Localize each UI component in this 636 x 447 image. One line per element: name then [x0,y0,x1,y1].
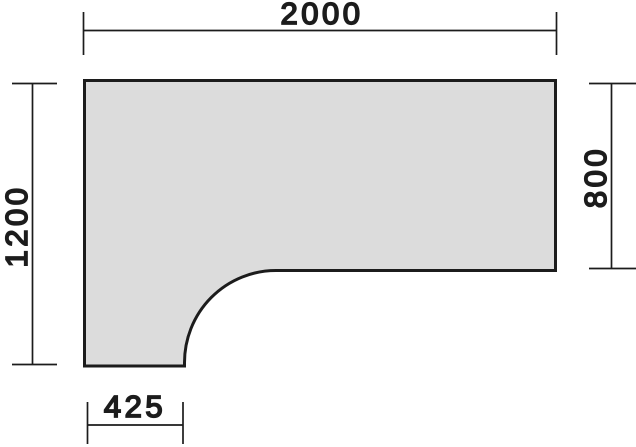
drawing-canvas: 2000 1200 800 425 [0,0,636,447]
dim-left-label: 1200 [0,185,34,268]
dimension-left-height: 1200 [0,84,57,365]
dim-right-label: 800 [578,146,613,208]
dim-bottom-label: 425 [104,389,166,424]
dimension-right-depth: 800 [578,84,636,269]
dimension-drawing: 2000 1200 800 425 [0,0,636,447]
desk-surface-outline [85,81,556,367]
dimension-bottom-notch: 425 [88,389,184,444]
dimension-top-width: 2000 [84,0,557,55]
dim-top-label: 2000 [281,0,364,31]
